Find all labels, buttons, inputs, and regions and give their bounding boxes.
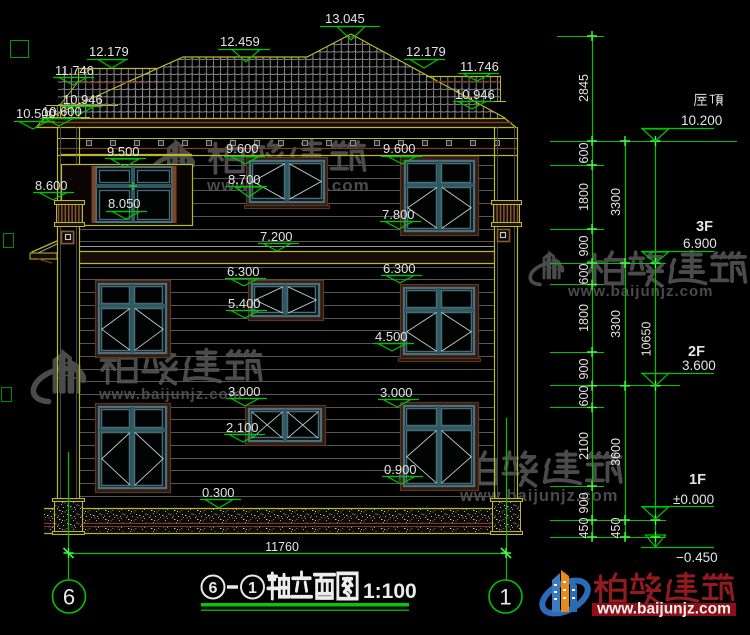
svg-text:6.300: 6.300 — [383, 261, 416, 276]
svg-text:1800: 1800 — [577, 183, 591, 211]
svg-text:3F: 3F — [696, 219, 713, 235]
svg-text:7.800: 7.800 — [382, 207, 415, 222]
svg-text:600: 600 — [577, 264, 591, 285]
svg-text:www.baijunjz.com: www.baijunjz.com — [596, 601, 731, 618]
svg-text:1:100: 1:100 — [363, 580, 417, 603]
svg-text:1: 1 — [499, 585, 511, 610]
svg-text:2.100: 2.100 — [226, 420, 259, 435]
svg-text:9.600: 9.600 — [226, 141, 259, 156]
svg-text:10.500: 10.500 — [16, 106, 56, 121]
svg-text:7.200: 7.200 — [260, 229, 293, 244]
svg-text:3600: 3600 — [609, 438, 623, 466]
svg-text:±0.000: ±0.000 — [673, 492, 714, 507]
svg-text:−0.450: −0.450 — [676, 550, 718, 565]
svg-text:www.baijunjz.com: www.baijunjz.com — [567, 283, 713, 300]
svg-text:900: 900 — [577, 236, 591, 257]
svg-text:450: 450 — [577, 518, 591, 539]
svg-text:900: 900 — [577, 359, 591, 380]
svg-text:3300: 3300 — [609, 188, 623, 216]
svg-text:600: 600 — [577, 143, 591, 164]
svg-text:900: 900 — [577, 493, 591, 514]
svg-text:6: 6 — [209, 580, 218, 597]
svg-text:12.459: 12.459 — [220, 34, 260, 49]
svg-text:2845: 2845 — [577, 74, 591, 102]
svg-text:12.179: 12.179 — [89, 44, 129, 59]
svg-text:11760: 11760 — [265, 540, 299, 554]
svg-text:9.600: 9.600 — [383, 141, 416, 156]
svg-text:10.200: 10.200 — [681, 113, 722, 128]
svg-text:13.045: 13.045 — [325, 11, 365, 26]
svg-text:600: 600 — [577, 386, 591, 407]
svg-text:8.050: 8.050 — [108, 196, 141, 211]
svg-text:6: 6 — [63, 585, 75, 610]
svg-text:6.300: 6.300 — [227, 264, 260, 279]
svg-text:8.700: 8.700 — [228, 172, 261, 187]
svg-text:1: 1 — [248, 580, 257, 597]
svg-text:12.179: 12.179 — [406, 44, 446, 59]
svg-text:3300: 3300 — [609, 310, 623, 338]
svg-text:8.600: 8.600 — [35, 178, 68, 193]
svg-text:0.900: 0.900 — [384, 462, 417, 477]
svg-text:4.500: 4.500 — [375, 329, 408, 344]
svg-text:0.300: 0.300 — [202, 485, 235, 500]
svg-text:11.746: 11.746 — [55, 63, 94, 78]
svg-text:1800: 1800 — [577, 304, 591, 332]
svg-text:3.600: 3.600 — [682, 358, 716, 373]
svg-text:2100: 2100 — [577, 432, 591, 460]
svg-text:1F: 1F — [689, 472, 706, 488]
svg-text:3.000: 3.000 — [380, 385, 413, 400]
svg-text:9.500: 9.500 — [107, 144, 140, 159]
svg-text:5.400: 5.400 — [228, 296, 261, 311]
svg-text:11.746: 11.746 — [460, 59, 499, 74]
svg-text:10650: 10650 — [640, 322, 654, 357]
svg-text:10.946: 10.946 — [455, 87, 495, 102]
svg-text:450: 450 — [609, 518, 623, 539]
svg-text:3.000: 3.000 — [228, 384, 261, 399]
svg-text:6.900: 6.900 — [683, 236, 717, 251]
